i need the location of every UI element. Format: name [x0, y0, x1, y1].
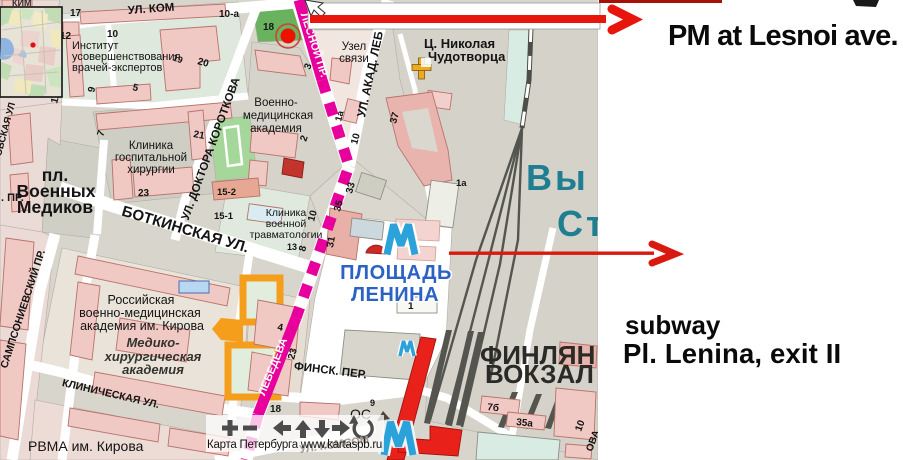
svg-text:академия: академия — [122, 362, 184, 377]
svg-text:Узел: Узел — [342, 41, 367, 53]
svg-text:Российская: Российская — [108, 293, 175, 307]
svg-text:15-2: 15-2 — [217, 187, 236, 198]
svg-text:35а: 35а — [516, 417, 534, 430]
svg-text:15-1: 15-1 — [214, 211, 234, 222]
svg-text:10: 10 — [107, 29, 119, 40]
svg-text:врачей-экспертов: врачей-экспертов — [72, 62, 163, 74]
svg-text:Чудотворца: Чудотворца — [428, 49, 506, 64]
svg-text:13: 13 — [287, 242, 297, 252]
svg-text:18: 18 — [263, 22, 275, 33]
svg-text:РВМА им. Кирова: РВМА им. Кирова — [28, 438, 144, 454]
svg-text:Медико-: Медико- — [126, 335, 179, 350]
svg-text:Медиков: Медиков — [17, 197, 93, 217]
svg-text:Вы: Вы — [526, 157, 589, 198]
svg-text:академия: академия — [250, 123, 302, 135]
svg-text:Военно-: Военно- — [254, 97, 298, 109]
svg-text:9: 9 — [370, 398, 375, 408]
svg-text:subway: subway — [625, 310, 721, 340]
svg-text:академия им. Кирова: академия им. Кирова — [80, 319, 204, 333]
svg-text:травматологии: травматологии — [250, 229, 323, 241]
svg-text:7б: 7б — [487, 401, 500, 414]
svg-text:10-а: 10-а — [219, 9, 239, 20]
svg-text:военно-медицинская: военно-медицинская — [79, 306, 201, 320]
svg-text:госпитальной: госпитальной — [115, 152, 187, 164]
svg-text:. ПР.: . ПР. — [1, 192, 24, 204]
svg-text:PM at Lesnoi ave.: PM at Lesnoi ave. — [668, 20, 898, 52]
svg-text:хирургии: хирургии — [127, 164, 175, 176]
svg-text:Клиника: Клиника — [129, 140, 174, 152]
svg-text:18: 18 — [270, 404, 282, 415]
svg-text:ПЛОЩАДЬ: ПЛОЩАДЬ — [340, 262, 452, 284]
svg-text:ЛЕНИНА: ЛЕНИНА — [351, 284, 439, 306]
svg-text:медицинская: медицинская — [243, 110, 313, 122]
svg-text:Карта Петербурга www.kartaspb: Карта Петербурга www.kartaspb.ru — [207, 439, 382, 451]
svg-text:ВОКЗАЛ: ВОКЗАЛ — [485, 359, 594, 389]
svg-text:Pl. Lenina, exit II: Pl. Lenina, exit II — [623, 338, 841, 369]
svg-text:23: 23 — [138, 188, 150, 199]
